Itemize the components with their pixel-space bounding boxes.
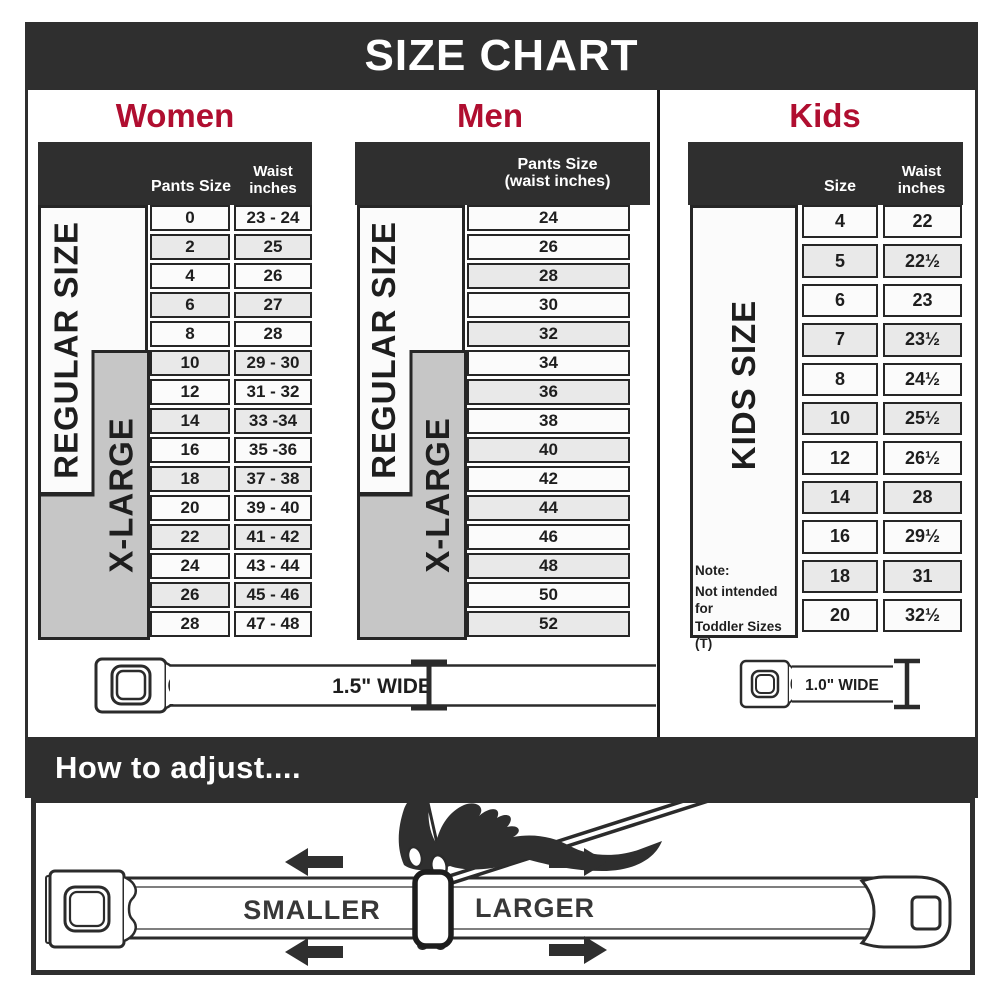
women-waist-value: 35 -36 (234, 437, 312, 463)
kids-size-value: 16 (802, 520, 878, 553)
kids-table-rows: 422522½623723½824½1025½1226½14281629½183… (802, 205, 963, 638)
table-row: 023 - 24 (150, 205, 312, 231)
table-row: 48 (467, 553, 630, 579)
table-row: 828 (150, 321, 312, 347)
kids-belt-diagram: 1.0" WIDE (735, 653, 930, 715)
women-regular-size-label: REGULAR SIZE (38, 205, 93, 495)
kids-size-value: 10 (802, 402, 878, 435)
seatbelt-buckle-icon (46, 871, 136, 947)
men-size-value: 42 (467, 466, 630, 492)
table-row: 36 (467, 379, 630, 405)
men-size-value: 34 (467, 350, 630, 376)
women-pants-size-value: 24 (150, 553, 230, 579)
table-row: 1029 - 30 (150, 350, 312, 376)
women-pants-size-value: 28 (150, 611, 230, 637)
women-waist-value: 37 - 38 (234, 466, 312, 492)
table-row: 30 (467, 292, 630, 318)
men-size-value: 50 (467, 582, 630, 608)
women-pants-size-value: 10 (150, 350, 230, 376)
seatbelt-buckle-icon (96, 659, 174, 712)
men-size-value: 36 (467, 379, 630, 405)
women-waist-value: 31 - 32 (234, 379, 312, 405)
women-waist-value: 33 -34 (234, 408, 312, 434)
kids-waist-value: 23 (883, 284, 962, 317)
women-xlarge-label: X-LARGE (93, 350, 148, 640)
women-pants-size-value: 14 (150, 408, 230, 434)
women-pants-size-value: 2 (150, 234, 230, 260)
kids-waist-value: 29½ (883, 520, 962, 553)
men-table-header: Pants Size (waist inches) (355, 142, 650, 205)
table-row: 2645 - 46 (150, 582, 312, 608)
kids-size-value: 5 (802, 244, 878, 277)
kids-waist-value: 22½ (883, 244, 962, 277)
women-waist-value: 41 - 42 (234, 524, 312, 550)
width-dimension-icon (894, 661, 920, 707)
table-row: 38 (467, 408, 630, 434)
women-waist-value: 47 - 48 (234, 611, 312, 637)
women-waist-value: 23 - 24 (234, 205, 312, 231)
kids-size-value: 6 (802, 284, 878, 317)
women-pants-size-value: 16 (150, 437, 230, 463)
kids-waist-value: 26½ (883, 441, 962, 474)
table-row: 1428 (802, 481, 963, 514)
men-xlarge-label: X-LARGE (411, 350, 465, 640)
women-waist-value: 29 - 30 (234, 350, 312, 376)
table-row: 1831 (802, 560, 963, 593)
table-row: 1025½ (802, 402, 963, 435)
table-row: 522½ (802, 244, 963, 277)
men-size-value: 26 (467, 234, 630, 260)
kids-size-value: 4 (802, 205, 878, 238)
women-pants-size-value: 0 (150, 205, 230, 231)
kids-waist-value: 32½ (883, 599, 962, 632)
arrow-right-icon (549, 936, 607, 964)
men-col-header: Pants Size (waist inches) (465, 156, 650, 192)
women-pants-size-value: 26 (150, 582, 230, 608)
men-size-value: 46 (467, 524, 630, 550)
women-waist-value: 28 (234, 321, 312, 347)
table-row: 1629½ (802, 520, 963, 553)
kids-waist-value: 28 (883, 481, 962, 514)
table-row: 2039 - 40 (150, 495, 312, 521)
table-row: 40 (467, 437, 630, 463)
men-size-value: 24 (467, 205, 630, 231)
women-col1-header: Pants Size (150, 178, 232, 205)
kids-size-value: 7 (802, 323, 878, 356)
adjust-illustration: SMALLER LARGER (36, 803, 970, 970)
table-row: 34 (467, 350, 630, 376)
table-row: 2443 - 44 (150, 553, 312, 579)
table-row: 44 (467, 495, 630, 521)
kids-size-value: 20 (802, 599, 878, 632)
table-row: 1231 - 32 (150, 379, 312, 405)
women-waist-value: 27 (234, 292, 312, 318)
kids-size-value: 14 (802, 481, 878, 514)
men-size-value: 40 (467, 437, 630, 463)
table-row: 426 (150, 263, 312, 289)
arrow-left-icon (285, 848, 343, 876)
hand-icon (399, 803, 662, 878)
women-waist-value: 39 - 40 (234, 495, 312, 521)
table-row: 1226½ (802, 441, 963, 474)
kids-waist-value: 25½ (883, 402, 962, 435)
belt-tongue-icon (862, 877, 950, 947)
women-col2-header: Waist inches (234, 164, 312, 205)
table-row: 2847 - 48 (150, 611, 312, 637)
women-pants-size-value: 20 (150, 495, 230, 521)
table-row: 623 (802, 284, 963, 317)
women-table-rows: 023 - 242254266278281029 - 301231 - 3214… (150, 205, 312, 640)
table-row: 24 (467, 205, 630, 231)
women-waist-value: 26 (234, 263, 312, 289)
men-size-value: 38 (467, 408, 630, 434)
women-waist-value: 45 - 46 (234, 582, 312, 608)
kids-waist-value: 22 (883, 205, 962, 238)
kids-table-header: Size Waist inches (688, 142, 963, 205)
women-pants-size-value: 12 (150, 379, 230, 405)
page-title: SIZE CHART (365, 31, 639, 81)
kids-note: Note: Not intended for Toddler Sizes (T) (695, 562, 797, 653)
adult-belt-diagram: 1.5" WIDE (90, 650, 660, 722)
women-waist-value: 25 (234, 234, 312, 260)
table-row: 52 (467, 611, 630, 637)
men-size-value: 44 (467, 495, 630, 521)
table-row: 1837 - 38 (150, 466, 312, 492)
kids-heading: Kids (725, 97, 925, 135)
men-size-value: 48 (467, 553, 630, 579)
men-size-value: 30 (467, 292, 630, 318)
women-waist-value: 43 - 44 (234, 553, 312, 579)
kids-size-value: 18 (802, 560, 878, 593)
size-chart-page: SIZE CHART Women Men Kids Pants Size Wai… (0, 0, 1000, 1000)
kids-waist-value: 23½ (883, 323, 962, 356)
women-heading: Women (75, 97, 275, 135)
table-row: 50 (467, 582, 630, 608)
belt-slider-icon (415, 872, 451, 950)
table-row: 28 (467, 263, 630, 289)
women-pants-size-value: 8 (150, 321, 230, 347)
table-row: 2241 - 42 (150, 524, 312, 550)
men-table-rows: 242628303234363840424446485052 (467, 205, 630, 640)
table-row: 46 (467, 524, 630, 550)
men-size-value: 52 (467, 611, 630, 637)
seatbelt-buckle-icon (741, 661, 795, 707)
kids-col2-header: Waist inches (882, 164, 961, 205)
kids-belt-width-label: 1.0" WIDE (805, 677, 879, 694)
section-divider (657, 90, 660, 737)
table-row: 723½ (802, 323, 963, 356)
smaller-label: SMALLER (243, 895, 381, 925)
table-row: 225 (150, 234, 312, 260)
men-heading: Men (390, 97, 590, 135)
table-row: 32 (467, 321, 630, 347)
table-row: 1433 -34 (150, 408, 312, 434)
men-size-value: 28 (467, 263, 630, 289)
kids-col1-header: Size (802, 178, 878, 205)
table-row: 2032½ (802, 599, 963, 632)
table-row: 422 (802, 205, 963, 238)
women-pants-size-value: 18 (150, 466, 230, 492)
women-pants-size-value: 4 (150, 263, 230, 289)
title-banner: SIZE CHART (25, 22, 978, 90)
how-to-adjust-title: How to adjust.... (25, 750, 301, 786)
kids-size-value: 8 (802, 363, 878, 396)
kids-size-value: 12 (802, 441, 878, 474)
table-row: 1635 -36 (150, 437, 312, 463)
women-table-header: Pants Size Waist inches (38, 142, 312, 205)
kids-size-label: KIDS SIZE (714, 235, 774, 535)
kids-waist-value: 24½ (883, 363, 962, 396)
table-row: 26 (467, 234, 630, 260)
men-size-value: 32 (467, 321, 630, 347)
larger-label: LARGER (475, 893, 595, 923)
table-row: 42 (467, 466, 630, 492)
how-to-adjust-band: How to adjust.... (25, 737, 978, 798)
adult-belt-width-label: 1.5" WIDE (332, 675, 432, 698)
arrow-left-icon (285, 938, 343, 966)
men-regular-size-label: REGULAR SIZE (357, 205, 411, 495)
table-row: 627 (150, 292, 312, 318)
kids-waist-value: 31 (883, 560, 962, 593)
women-pants-size-value: 22 (150, 524, 230, 550)
women-pants-size-value: 6 (150, 292, 230, 318)
table-row: 824½ (802, 363, 963, 396)
